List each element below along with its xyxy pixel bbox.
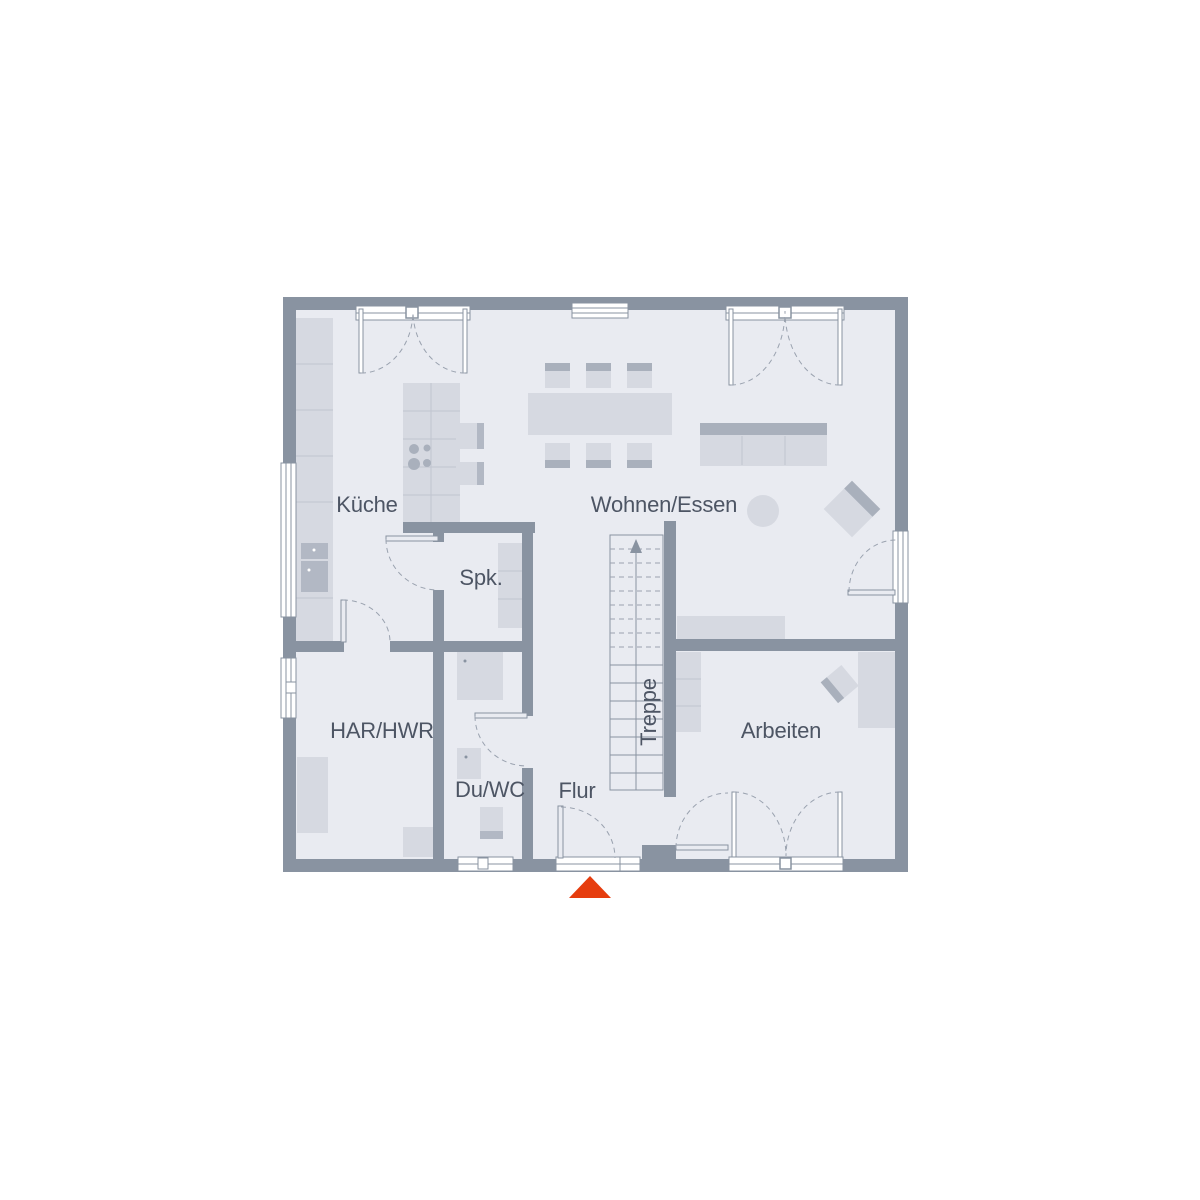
- wall-har-top-right: [390, 641, 533, 652]
- french-door-kueche-post: [359, 309, 363, 373]
- kitchen-counter: [296, 318, 333, 641]
- wall-duwc-left: [433, 652, 444, 859]
- french-door-kueche-divider: [406, 307, 418, 318]
- entrance-marker: [569, 876, 611, 898]
- bar-stool-back: [477, 462, 484, 485]
- french-door-arbeiten-post: [732, 792, 736, 857]
- window-top: [572, 303, 628, 318]
- dining-chair-back: [627, 363, 652, 371]
- dining-chair-back: [545, 363, 570, 371]
- french-door-wohnen-post: [729, 309, 733, 385]
- cooktop-burner: [423, 459, 431, 467]
- cooktop-burner: [409, 444, 419, 454]
- kitchen-appliance: [301, 561, 328, 592]
- dining-table: [528, 393, 672, 435]
- window-duwc-handle: [478, 858, 488, 869]
- room-label-arbeiten: Arbeiten: [741, 718, 821, 744]
- window-kueche-left: [281, 463, 296, 617]
- dining-chair-back: [586, 460, 611, 468]
- desk: [858, 652, 895, 728]
- entrance-door-leaf: [558, 806, 563, 858]
- room-label-har-hwr: HAR/HWR: [330, 718, 434, 744]
- bar-stool-back: [477, 423, 484, 449]
- cooktop-burner: [408, 458, 420, 470]
- wall-har-top-left: [296, 641, 344, 652]
- sofa-back: [700, 423, 827, 435]
- room-label-kueche: Küche: [336, 492, 397, 518]
- office-shelf: [676, 652, 701, 732]
- wc: [480, 807, 503, 833]
- floorplan-canvas: [0, 0, 1200, 1200]
- har-cabinet: [403, 827, 433, 857]
- washbasin: [457, 748, 481, 779]
- french-door-arbeiten-post: [838, 792, 842, 857]
- french-door-kueche-post: [463, 309, 467, 373]
- pantry-door-leaf: [386, 536, 438, 541]
- french-door-arbeiten-divider: [780, 858, 791, 869]
- room-label-du-wc: Du/WC: [455, 777, 525, 803]
- shower: [457, 652, 503, 700]
- room-label-flur: Flur: [558, 778, 595, 804]
- cooktop-burner: [424, 445, 431, 452]
- coffee-table: [747, 495, 779, 527]
- dining-chair-back: [545, 460, 570, 468]
- terrace-door-leaf: [848, 590, 895, 595]
- floorplan-page: Küche Wohnen/Essen Spk. HAR/HWR Du/WC Fl…: [0, 0, 1200, 1200]
- appliance-dot: [308, 569, 311, 572]
- french-door-wohnen-post: [838, 309, 842, 385]
- sideboard: [677, 616, 785, 639]
- wall-stairs-right: [664, 521, 676, 797]
- dining-chair-back: [586, 363, 611, 371]
- sofa-seat: [700, 435, 827, 466]
- shower-drain: [464, 660, 467, 663]
- window-har-handle: [286, 682, 296, 693]
- wall-pantry-top: [403, 522, 535, 533]
- arbeiten-door-leaf: [676, 845, 728, 850]
- duwc-door-leaf: [475, 713, 527, 718]
- wall-wohnen-arbeiten: [664, 639, 908, 651]
- room-label-spk: Spk.: [459, 565, 502, 591]
- har-door-leaf: [341, 600, 346, 642]
- room-label-wohnen-essen: Wohnen/Essen: [591, 492, 737, 518]
- wall-duwc-right-upper: [522, 522, 533, 716]
- room-label-treppe: Treppe: [636, 678, 662, 746]
- basin-tap: [465, 756, 468, 759]
- sink-dot: [313, 549, 316, 552]
- har-shelf: [297, 757, 328, 833]
- wc-seat: [480, 831, 503, 839]
- wall-flur-stub: [642, 845, 676, 859]
- dining-chair-back: [627, 460, 652, 468]
